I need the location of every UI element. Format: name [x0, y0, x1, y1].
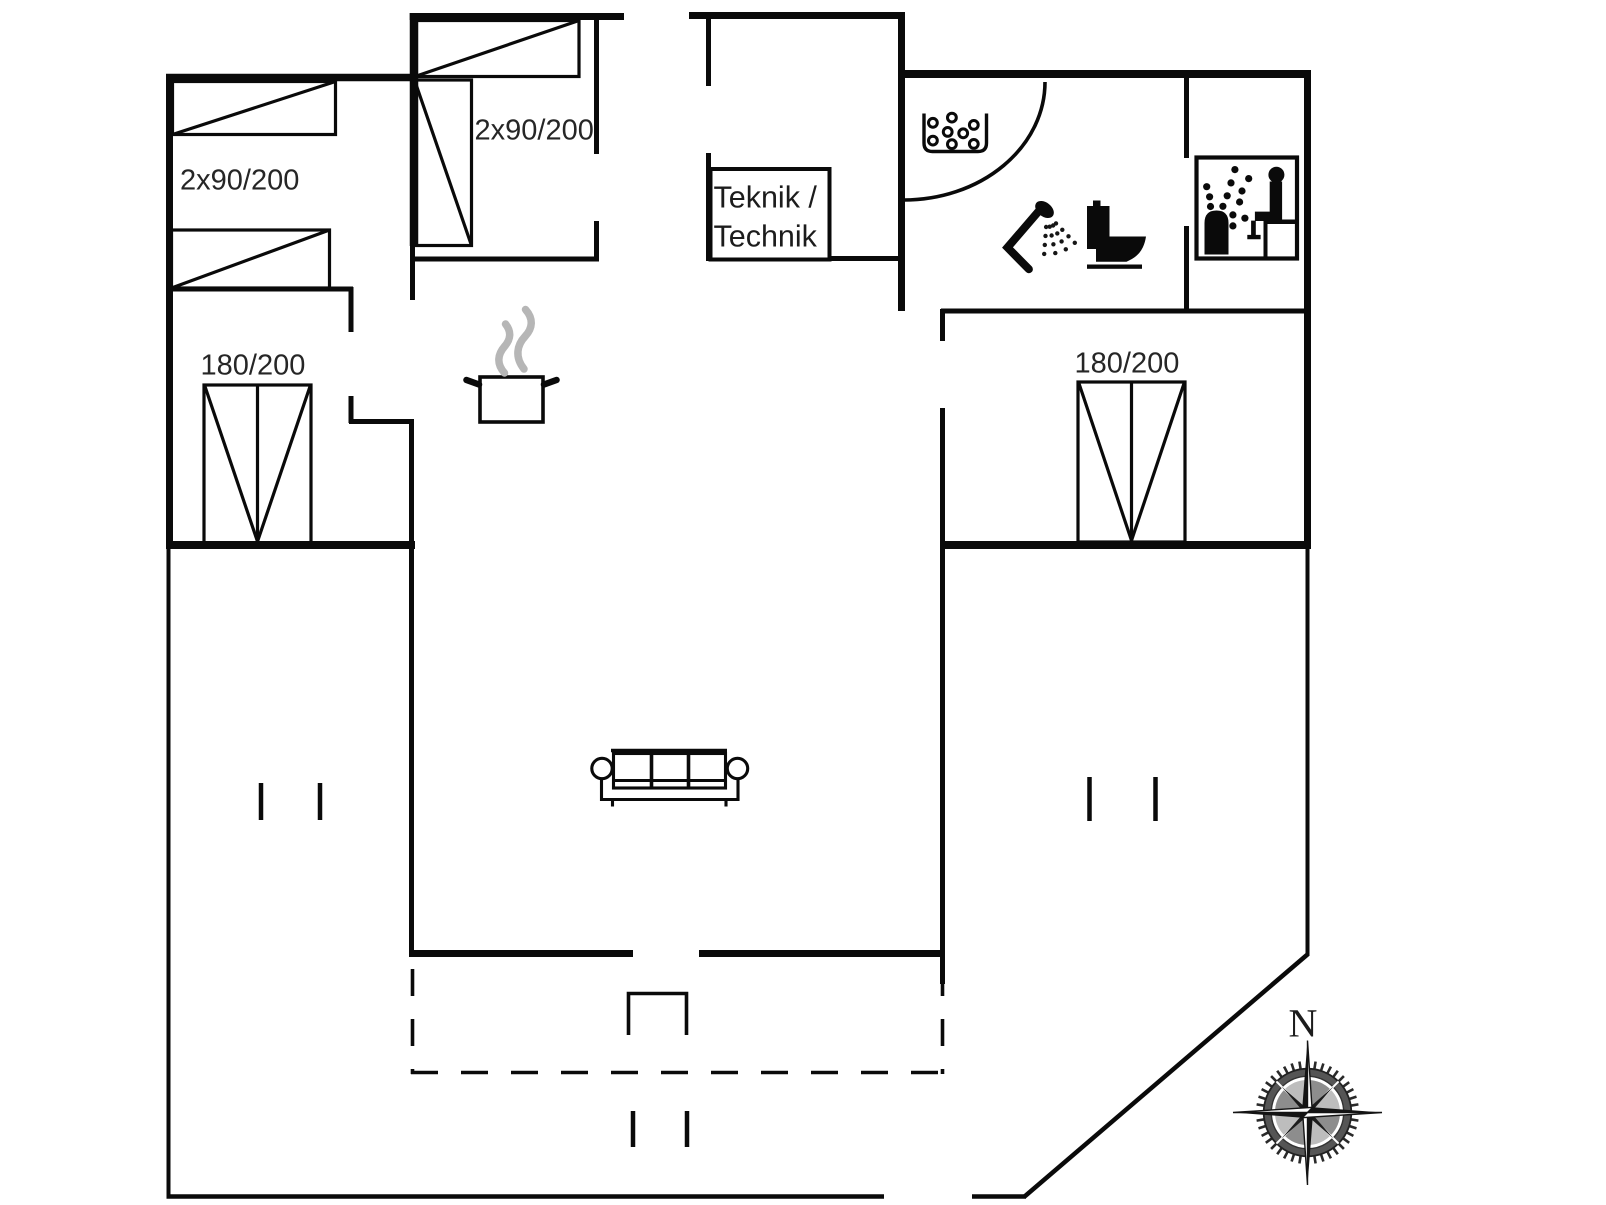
svg-text:Teknik /: Teknik /: [714, 181, 818, 215]
svg-text:180/200: 180/200: [1075, 348, 1180, 380]
svg-text:2x90/200: 2x90/200: [180, 165, 299, 197]
svg-text:2x90/200: 2x90/200: [475, 115, 594, 147]
svg-text:N: N: [1289, 1001, 1318, 1046]
svg-text:180/200: 180/200: [201, 350, 306, 382]
svg-text:Technik: Technik: [714, 220, 818, 254]
